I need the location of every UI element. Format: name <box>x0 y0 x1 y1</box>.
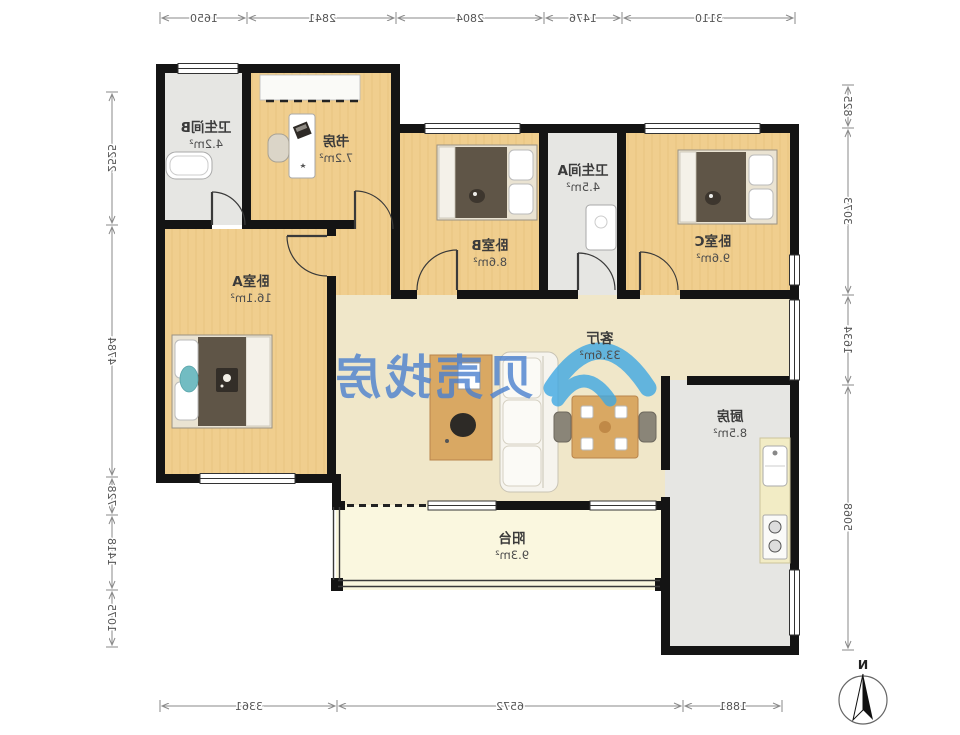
dim-left-728: 728 <box>105 486 118 507</box>
bathroom-a-area: 4.5m² <box>566 180 600 194</box>
dim-bottom-3361: 3361 <box>235 700 263 713</box>
dimension-top: 3110 1476 2804 2841 1650 <box>160 12 795 25</box>
dim-top-1476: 1476 <box>569 12 597 25</box>
bathroom-b-area: 4.2m² <box>189 137 223 151</box>
living-area: 33.6m² <box>579 348 620 362</box>
dim-left-1075: 1075 <box>105 604 118 632</box>
study-area: 7.2m² <box>319 151 353 165</box>
compass-north-label: N <box>858 657 868 672</box>
hallway-floor <box>327 220 396 295</box>
bedroom-c-area: 9.6m² <box>696 251 730 265</box>
dim-right-3073: 3073 <box>841 197 854 225</box>
stove-burner-2 <box>769 540 781 552</box>
kitchen-counter <box>760 438 790 563</box>
study-bay-window <box>260 75 360 101</box>
floorplan-image: 贝壳找房 卫生间B 4.2m² 书房 7.2m² 卧室B 8.6m² 卫生间A … <box>0 0 960 735</box>
dim-right-5068: 5068 <box>841 503 854 531</box>
dimension-bottom: 1881 6572 3361 <box>160 700 782 713</box>
bedroom-b-area: 8.6m² <box>473 255 507 269</box>
dim-top-3110: 3110 <box>695 12 723 25</box>
dim-top-2804: 2804 <box>456 12 484 25</box>
kitchen-area: 8.5m² <box>713 426 747 440</box>
dim-top-2841: 2841 <box>308 12 336 25</box>
stove-burner-1 <box>769 521 781 533</box>
bedroom-c-name: 卧室C <box>694 233 731 250</box>
bedroom-b-bed <box>437 145 537 220</box>
bedroom-a-bed <box>172 335 272 428</box>
bedroom-a-name: 卧室A <box>232 273 270 290</box>
dim-left-2525: 2525 <box>105 144 118 172</box>
bathroom-b-name: 卫生间B <box>181 119 232 136</box>
bathroom-b-bathtub <box>166 152 212 179</box>
dimension-left: 825 3073 1634 5068 <box>841 85 854 650</box>
compass-needle-icon <box>863 674 873 720</box>
dim-right-1634: 1634 <box>841 326 854 354</box>
balcony-area: 9.3m² <box>495 548 529 562</box>
watermark-text: 贝壳找房 <box>330 351 534 406</box>
dim-left-1418: 1418 <box>105 538 118 566</box>
bedroom-c-bed <box>678 150 777 224</box>
dim-left-4784: 4784 <box>105 337 118 365</box>
dim-bottom-1881: 1881 <box>719 700 747 713</box>
dim-bottom-6572: 6572 <box>496 700 524 713</box>
dim-right-825: 825 <box>841 96 854 117</box>
bathroom-a-washer <box>586 205 616 250</box>
bedroom-a-area: 16.1m² <box>230 291 271 305</box>
sink-faucet <box>773 451 778 456</box>
mirrored-plan-group: 贝壳找房 卫生间B 4.2m² 书房 7.2m² 卧室B 8.6m² 卫生间A … <box>105 12 887 724</box>
bathroom-a-name: 卫生间A <box>557 162 608 179</box>
study-name: 书房 <box>323 133 350 150</box>
living-name: 客厅 <box>586 330 615 347</box>
compass: N <box>839 657 887 724</box>
dim-top-1650: 1650 <box>190 12 218 25</box>
balcony-name: 阳台 <box>499 530 526 547</box>
bedroom-b-name: 卧室B <box>471 237 508 254</box>
dimension-right: 2525 4784 728 1418 1075 <box>105 92 118 647</box>
kitchen-name: 厨房 <box>717 408 744 425</box>
